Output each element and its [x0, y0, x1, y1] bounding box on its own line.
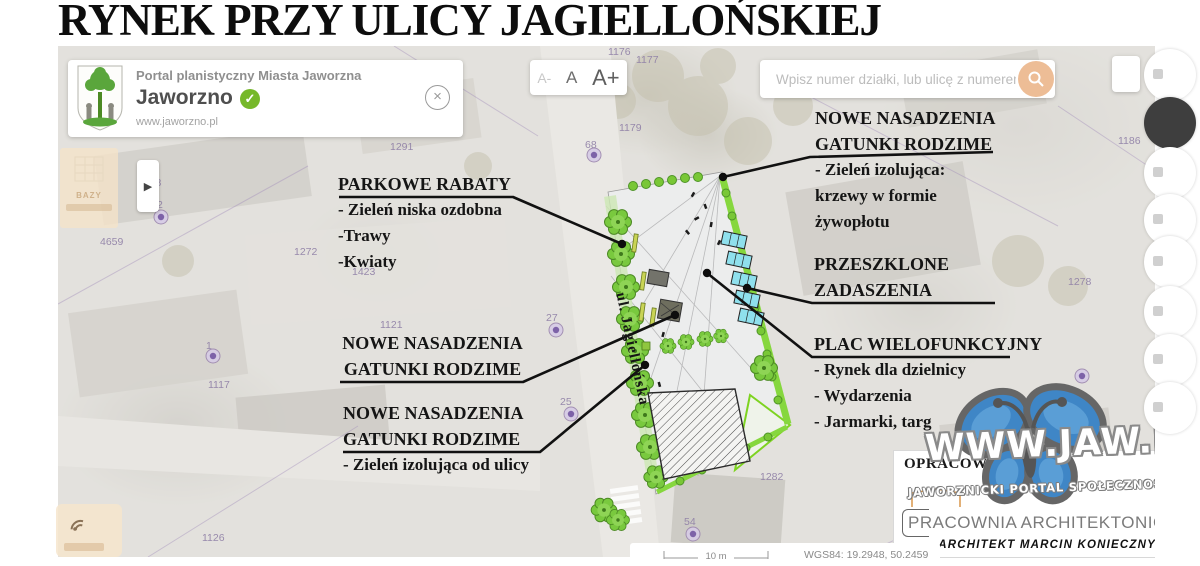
watermark-title: www.jaw.pl — [924, 420, 1170, 470]
parcel-label: 1186 — [1118, 135, 1141, 147]
parcel-label: 1282 — [760, 471, 783, 483]
expand-arrow-icon: ▶ — [144, 180, 152, 193]
parcel-label: 4659 — [100, 236, 123, 248]
font-normal-button[interactable]: A — [566, 68, 577, 88]
parcel-label: 68 — [585, 139, 597, 151]
parcel-label: 1177 — [636, 54, 659, 66]
layers-panel-label: BAZY — [60, 191, 118, 200]
parcel-label: 1 — [206, 340, 212, 352]
wgs84-coordinates: WGS84: 19.2948, 50.2459 — [804, 549, 928, 561]
parcel-label: 27 — [546, 312, 558, 324]
font-decrease-button[interactable]: A- — [537, 70, 551, 86]
annotation-nowe-nasadzenia-mid: NOWE NASADZENIA GATUNKI RODZIME — [340, 330, 525, 382]
toolbar-button-1[interactable] — [1144, 49, 1196, 101]
search-input[interactable] — [774, 71, 1018, 88]
annotation-parkowe-rabaty: PARKOWE RABATY - Zieleń niska ozdobna -T… — [338, 171, 511, 275]
city-name: Jaworzno — [136, 86, 233, 110]
font-increase-button[interactable]: A+ — [592, 65, 620, 91]
parcel-label: 1179 — [619, 122, 642, 134]
page-title: RYNEK PRZY ULICY JAGIELLOŃSKIEJ — [58, 0, 881, 46]
toolbar-button-2[interactable] — [1144, 97, 1196, 149]
annotation-przeszklone-zadaszenia: PRZESZKLONE ZADASZENIA — [814, 251, 949, 303]
expand-panel-button[interactable]: ▶ — [137, 160, 159, 212]
parcel-label: 1176 — [608, 46, 631, 58]
architect-name: ARCHITEKT MARCIN KONIECZNY — [938, 539, 1156, 551]
parcel-label: 1126 — [202, 532, 225, 544]
parcel-label: 1272 — [294, 246, 317, 258]
toolbar-icon — [1153, 306, 1163, 316]
toolbar-button-8[interactable] — [1144, 382, 1196, 434]
toolbar-icon — [1153, 69, 1163, 79]
toolbar-icon — [1153, 214, 1163, 224]
toolbar-button-7[interactable] — [1144, 334, 1196, 386]
parcel-label: 1117 — [208, 379, 230, 391]
city-crest — [76, 64, 124, 132]
parcel-label: 25 — [560, 396, 572, 408]
toolbar-button-6[interactable] — [1144, 286, 1196, 338]
scale-bar: 10 m — [656, 547, 776, 563]
close-icon[interactable]: × — [425, 85, 450, 110]
search-button[interactable] — [1018, 61, 1054, 97]
layers-grid-icon — [74, 156, 104, 182]
toolbar-icon — [1153, 256, 1163, 266]
layers-panel-button[interactable]: BAZY — [60, 148, 118, 228]
portal-url[interactable]: www.jaworzno.pl — [136, 116, 218, 128]
portal-header-card: Portal planistyczny Miasta Jaworzna Jawo… — [68, 60, 463, 137]
parcel-label: 1291 — [390, 141, 413, 153]
toolbar-button-3[interactable] — [1144, 147, 1196, 199]
layers-panel-subtext — [66, 204, 112, 211]
toolbar-icon — [1153, 167, 1163, 177]
toolbar-icon — [1153, 354, 1163, 364]
toolbar-icon — [1153, 402, 1163, 412]
parcel-label: 1278 — [1068, 276, 1091, 288]
parcel-label: 54 — [684, 516, 696, 528]
map-control-button[interactable] — [1112, 56, 1140, 92]
search-bar — [760, 60, 1055, 98]
font-size-controls: A- A A+ — [530, 60, 627, 95]
annotation-nowe-nasadzenia-top: NOWE NASADZENIA GATUNKI RODZIME - Zieleń… — [815, 105, 996, 235]
screenshot-stage: RYNEK PRZY ULICY JAGIELLOŃSKIEJ — [0, 0, 1200, 566]
verified-icon: ✓ — [240, 89, 260, 109]
search-icon — [1027, 70, 1045, 88]
scale-bar-card: 10 m WGS84: 19.2948, 50.2459 — [630, 543, 940, 566]
portal-name: Portal planistyczny Miasta Jaworzna — [136, 68, 361, 83]
toolbar-button-5[interactable] — [1144, 236, 1196, 288]
signal-widget-button[interactable] — [56, 504, 122, 557]
signal-icon — [64, 512, 86, 532]
signal-widget-subtext — [64, 543, 104, 551]
annotation-nowe-nasadzenia-bottom: NOWE NASADZENIA GATUNKI RODZIME - Zieleń… — [343, 400, 529, 478]
scale-label: 10 m — [705, 551, 726, 562]
